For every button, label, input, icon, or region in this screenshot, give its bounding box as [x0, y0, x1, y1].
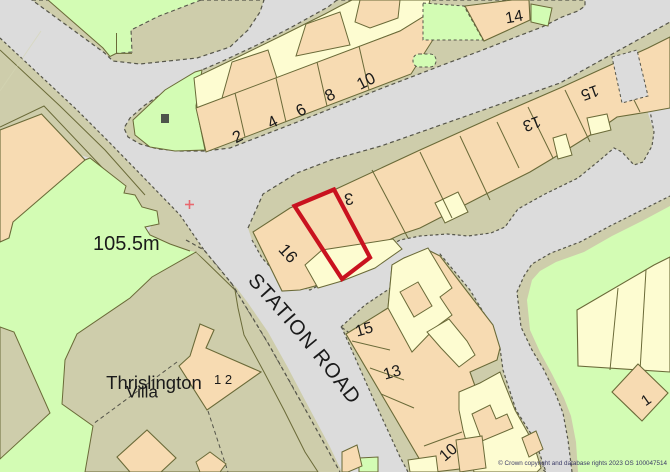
svg-text:105.5m: 105.5m: [93, 233, 160, 255]
svg-text:Villa: Villa: [126, 383, 158, 402]
svg-text:© Crown copyright and database: © Crown copyright and database rights 20…: [498, 459, 667, 467]
svg-text:14: 14: [504, 8, 525, 28]
svg-text:1 2: 1 2: [214, 372, 232, 387]
